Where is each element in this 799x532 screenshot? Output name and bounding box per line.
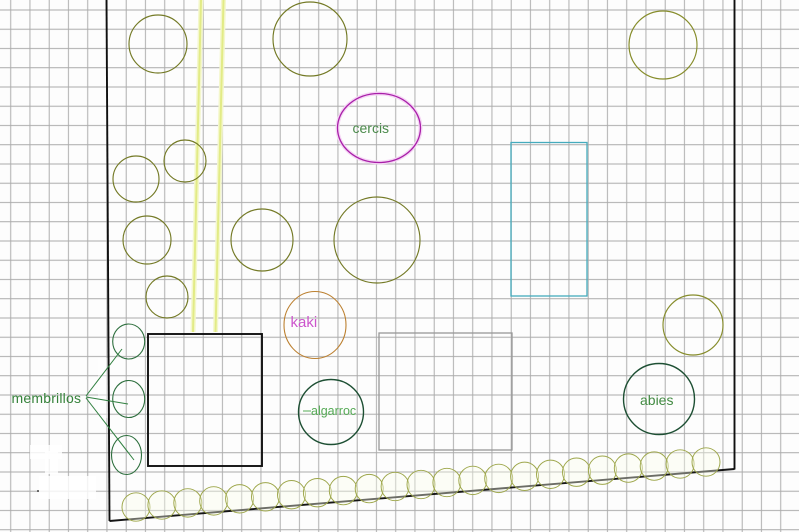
- svg-text:kaki: kaki: [291, 314, 318, 331]
- svg-text:cercis: cercis: [353, 120, 390, 136]
- svg-text:abies: abies: [640, 392, 673, 408]
- svg-text:algarroc: algarroc: [311, 404, 356, 418]
- svg-text:membrillos: membrillos: [12, 390, 82, 406]
